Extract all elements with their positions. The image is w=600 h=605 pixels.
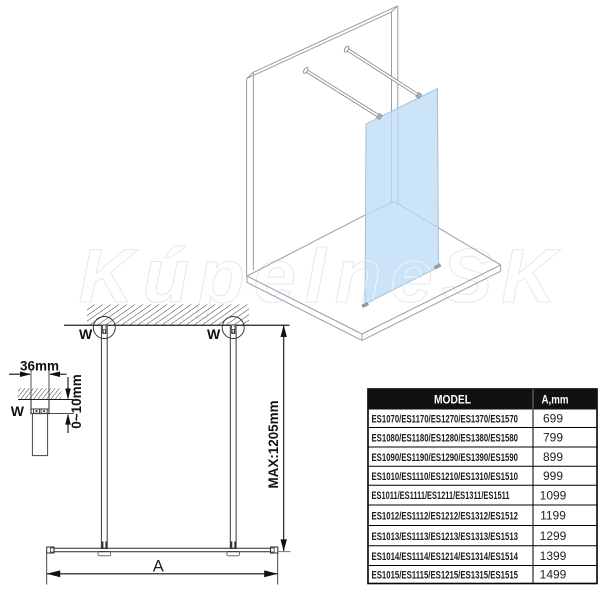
svg-text:MAX:1205mm: MAX:1205mm <box>266 401 282 489</box>
svg-text:0~10mm: 0~10mm <box>69 374 84 428</box>
svg-text:999: 999 <box>543 469 563 483</box>
svg-text:W: W <box>11 403 25 419</box>
svg-text:ES1080/ES1180/ES1280/ES1380/ES: ES1080/ES1180/ES1280/ES1380/ES1580 <box>372 432 519 444</box>
svg-text:W: W <box>207 326 221 342</box>
svg-text:ES1013/ES1113/ES1213/ES1313/ES: ES1013/ES1113/ES1213/ES1313/ES1513 <box>372 531 519 543</box>
svg-text:899: 899 <box>543 450 563 464</box>
svg-text:ES1015/ES1115/ES1215/ES1315/ES: ES1015/ES1115/ES1215/ES1315/ES1515 <box>372 570 519 582</box>
svg-text:799: 799 <box>543 430 563 444</box>
svg-text:ES1010/ES1110/ES1210/ES1310/ES: ES1010/ES1110/ES1210/ES1310/ES1510 <box>372 471 519 483</box>
svg-text:1199: 1199 <box>540 509 566 523</box>
svg-text:ES1070/ES1170/ES1270/ES1370/ES: ES1070/ES1170/ES1270/ES1370/ES1570 <box>372 414 519 426</box>
svg-text:36mm: 36mm <box>20 358 59 373</box>
svg-text:699: 699 <box>543 412 563 426</box>
svg-text:ES1014/ES1114/ES1214/ES1314/ES: ES1014/ES1114/ES1214/ES1314/ES1514 <box>372 551 519 563</box>
svg-text:MODEL: MODEL <box>434 395 471 407</box>
svg-text:W: W <box>79 326 93 342</box>
svg-text:1399: 1399 <box>540 549 567 563</box>
svg-text:1099: 1099 <box>540 488 567 502</box>
svg-text:A,mm: A,mm <box>542 395 569 407</box>
svg-text:1299: 1299 <box>540 529 567 543</box>
svg-text:A: A <box>153 558 164 576</box>
svg-text:ES1011/ES1111/ES1211/ES1311/ES: ES1011/ES1111/ES1211/ES1311/ES1511 <box>372 490 510 502</box>
svg-text:ES1090/ES1190/ES1290/ES1390/ES: ES1090/ES1190/ES1290/ES1390/ES1590 <box>372 452 519 464</box>
svg-text:1499: 1499 <box>540 568 567 582</box>
svg-text:ES1012/ES1112/ES1212/ES1312/ES: ES1012/ES1112/ES1212/ES1312/ES1512 <box>372 510 519 522</box>
